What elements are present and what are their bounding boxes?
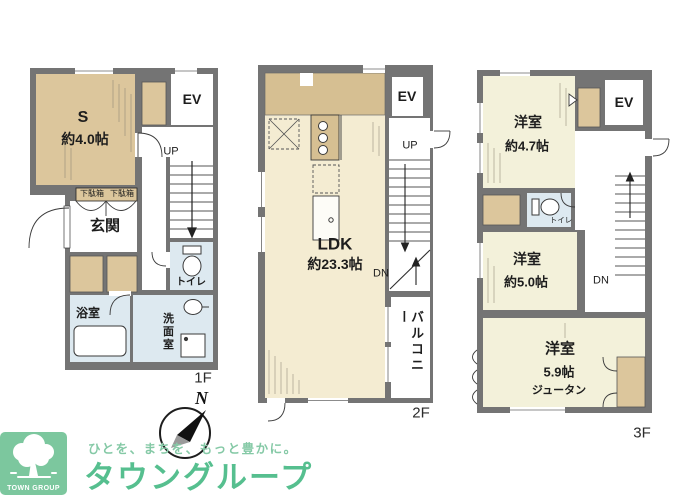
room-storage (36, 74, 135, 185)
washroom-label: 洗面室 (162, 313, 173, 352)
toilet-label-3f: トイレ (550, 216, 573, 224)
bedroom3-size: 5.9帖 (543, 366, 574, 379)
kitchen-sink-icon (313, 196, 339, 240)
stairs-up-label-2f: UP (402, 141, 417, 152)
closet-3f-top (578, 88, 600, 127)
stairs-down-label-3f: DN (593, 276, 609, 287)
bedroom3-flooring-note: ジュータン (532, 386, 586, 397)
elevator-label-1f: EV (183, 92, 202, 106)
ldk-name: LDK (318, 236, 353, 253)
storage-room-name: S (78, 110, 89, 126)
logo-mark: TOWN GROUP (0, 432, 67, 495)
room-bedroom2 (483, 232, 577, 310)
room-bedroom1 (483, 76, 575, 188)
toilet-icon-1f (183, 246, 201, 276)
toilet-icon-3f (532, 199, 559, 215)
bedroom1-name: 洋室 (514, 115, 542, 129)
closet-entrance-right (107, 256, 137, 292)
ldk-size: 約23.3帖 (307, 257, 362, 271)
shoe-cabinet-label-right: 下駄箱 (110, 190, 134, 198)
bathtub-icon (74, 326, 126, 356)
balcony-label: バルコニー (397, 310, 423, 388)
floor-label-2f: 2F (412, 406, 430, 421)
logo-caption: TOWN GROUP (0, 485, 67, 492)
stairs-down-label-2f: DN (373, 269, 389, 280)
bedroom2-name: 洋室 (513, 252, 541, 266)
floor-plan-1f-drawing (25, 60, 225, 395)
shoe-cabinet-label-left: 下駄箱 (80, 190, 104, 198)
closet-entrance-left (70, 256, 103, 292)
bathroom-label: 浴室 (76, 307, 100, 319)
stair-landing-3f (585, 230, 645, 312)
elevator-label-3f: EV (615, 95, 634, 109)
compass-north-label: N (195, 388, 208, 409)
kitchen-counter (265, 73, 385, 115)
closet-3f-bottom (617, 357, 645, 407)
floorplan-sheet: S 約4.0帖 EV UP 下駄箱 下駄箱 玄関 トイレ 浴室 洗面室 1F (0, 0, 700, 495)
hall-3f (575, 131, 645, 165)
toilet-label-1f: トイレ (176, 278, 206, 288)
floor-plan-1f: S 約4.0帖 EV UP 下駄箱 下駄箱 玄関 トイレ 浴室 洗面室 1F (25, 60, 225, 395)
logo-brand-name: タウングループ (84, 452, 313, 495)
closet-1f (142, 82, 166, 125)
bedroom1-size: 約4.7帖 (505, 140, 549, 153)
floor-plan-3f: 洋室 約4.7帖 EV トイレ 洋室 約5.0帖 DN 洋室 5.9帖 ジュータ… (470, 48, 685, 448)
floor-label-1f: 1F (194, 371, 212, 386)
floor-label-3f: 3F (633, 426, 651, 441)
bedroom3-name: 洋室 (545, 342, 575, 357)
entrance-label: 玄関 (90, 219, 120, 234)
stairs-up-label-1f: UP (163, 147, 178, 158)
washing-machine-icon (181, 334, 205, 357)
closet-3f-mid (483, 195, 520, 225)
floor-plan-2f: EV UP LDK 約23.3帖 DN バルコニー 2F (253, 52, 458, 427)
storage-room-size: 約4.0帖 (61, 132, 108, 146)
floor-plan-2f-drawing (253, 52, 458, 427)
tree-icon (0, 432, 67, 482)
bedroom2-size: 約5.0帖 (504, 276, 548, 289)
hall-toilet-3f (575, 165, 615, 230)
hall-side-1f (142, 157, 166, 290)
kitchen-counter-notch (300, 73, 313, 86)
elevator-label-2f: EV (398, 89, 417, 103)
